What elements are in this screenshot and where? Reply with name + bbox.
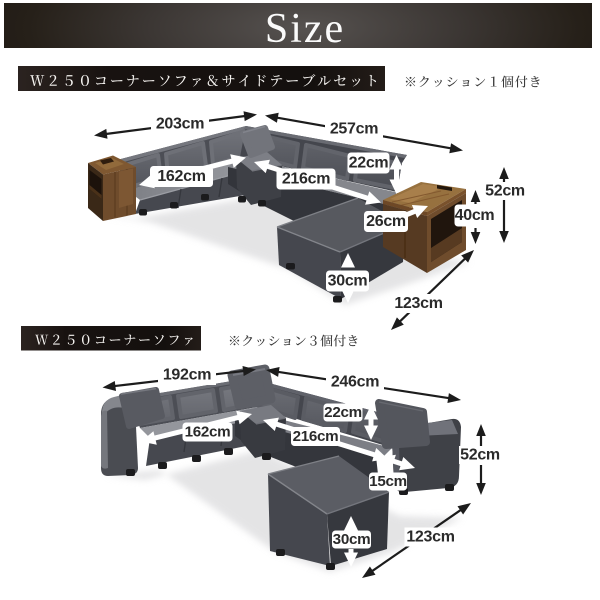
svg-text:22cm: 22cm bbox=[324, 404, 362, 421]
svg-text:257cm: 257cm bbox=[330, 121, 378, 138]
svg-text:52cm: 52cm bbox=[485, 183, 525, 200]
svg-text:203cm: 203cm bbox=[156, 116, 204, 133]
svg-text:30cm: 30cm bbox=[333, 531, 371, 548]
svg-text:246cm: 246cm bbox=[331, 374, 379, 391]
svg-text:22cm: 22cm bbox=[349, 155, 389, 172]
svg-text:162cm: 162cm bbox=[157, 168, 205, 185]
svg-text:162cm: 162cm bbox=[185, 424, 231, 441]
svg-text:26cm: 26cm bbox=[366, 213, 406, 230]
svg-text:216cm: 216cm bbox=[282, 171, 330, 188]
svg-text:40cm: 40cm bbox=[455, 207, 495, 224]
svg-text:15cm: 15cm bbox=[369, 473, 407, 490]
svg-text:30cm: 30cm bbox=[328, 273, 368, 290]
svg-text:216cm: 216cm bbox=[293, 428, 339, 445]
svg-text:123cm: 123cm bbox=[394, 295, 442, 312]
svg-text:123cm: 123cm bbox=[406, 529, 454, 546]
svg-text:52cm: 52cm bbox=[460, 447, 500, 464]
svg-text:192cm: 192cm bbox=[163, 367, 211, 384]
